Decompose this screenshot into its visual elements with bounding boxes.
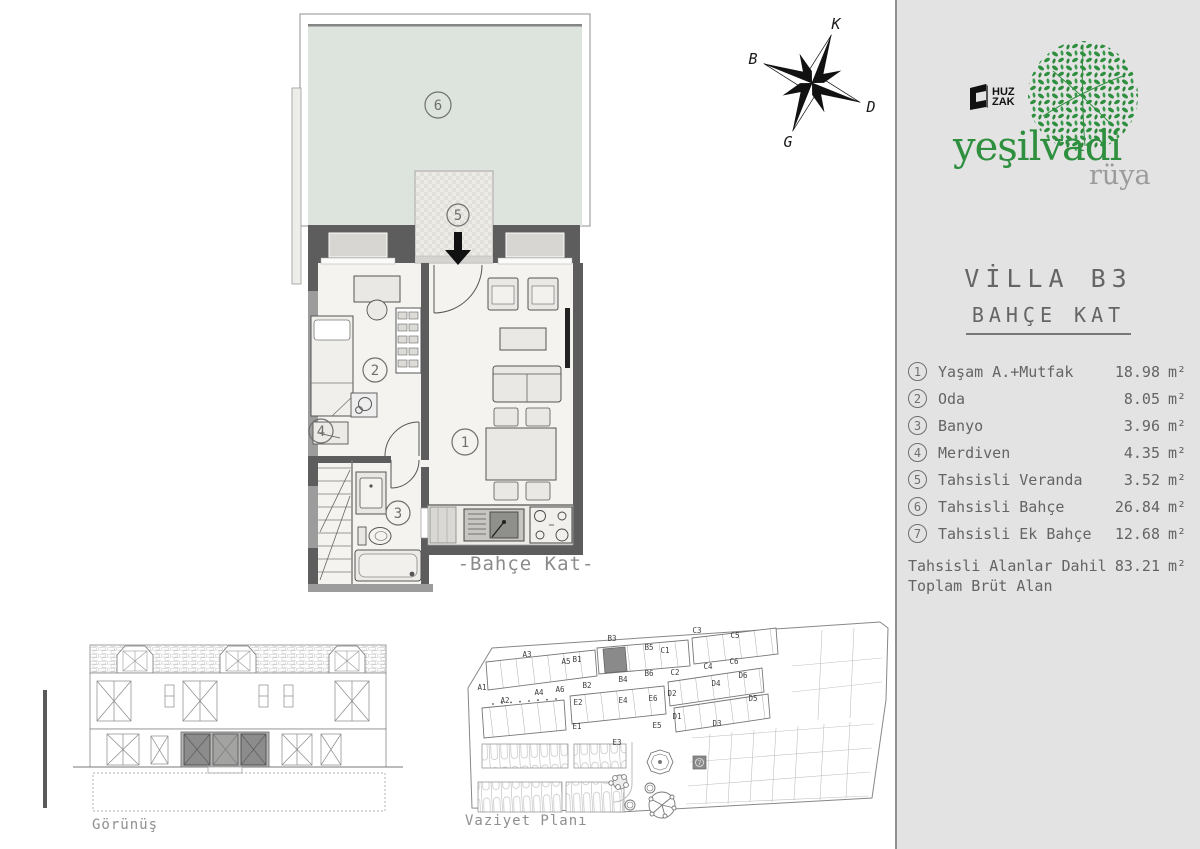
room-row: 2 Oda 8.05 m² [908,385,1186,412]
room-list: 1 Yaşam A.+Mutfak 18.98 m² 2 Oda 8.05 m²… [908,358,1186,547]
total-area: 83.21 [1110,557,1160,575]
room-area: 12.68 [1110,525,1160,543]
block-label: B6 [644,669,654,678]
plan-num-3: 3 [394,506,402,522]
compass-east-label: D [865,98,875,116]
block-label: A6 [555,685,565,694]
villa-title: VİLLA B3 [897,264,1200,293]
room-name: Oda [938,390,1110,408]
huzzak-logo: HUZ ZAK [969,84,1015,110]
total-unit: m² [1160,557,1186,575]
block-label: C4 [703,662,713,671]
floor-plan-label: -Bahçe Kat- [458,553,595,575]
room-area: 18.98 [1110,363,1160,381]
total-label-line1: Tahsisli Alanlar Dahil [908,557,1110,575]
floor-plan-drawing: 6 5 2 4 1 3 -Bahçe Kat- [288,8,598,592]
compass-icon: K D G B [740,5,890,155]
block-label: B5 [644,643,653,652]
room-num-badge: 6 [908,497,927,516]
room-name: Tahsisli Bahçe [938,498,1110,516]
compass-north-label: K [830,15,841,33]
ek-bahce-marker: 7 [693,756,706,769]
elevation-building [73,645,403,811]
room-row: 3 Banyo 3.96 m² [908,412,1186,439]
block-label: C3 [692,626,701,635]
block-label: D3 [712,719,721,728]
room-name: Yaşam A.+Mutfak [938,363,1110,381]
block-label: D2 [667,689,676,698]
highlighted-unit [181,732,269,767]
block-label: B3 [607,634,616,643]
room-num-badge: 2 [908,389,927,408]
huzzak-door-icon [969,84,989,110]
block-label: D5 [748,694,757,703]
block-label: E2 [573,698,582,707]
block-label: A3 [522,650,531,659]
brand-subname: rüya [1089,160,1151,191]
plan-num-4: 4 [317,424,325,440]
room-name: Merdiven [938,444,1110,462]
brochure-page: 6 5 2 4 1 3 -Bahçe Kat- K D G B [0,0,1200,849]
room-num-badge: 1 [908,362,927,381]
ek-bahce-num: 7 [698,760,702,767]
elevation-label: Görünüş [92,817,158,833]
room-row: 5 Tahsisli Veranda 3.52 m² [908,466,1186,493]
room-row: 1 Yaşam A.+Mutfak 18.98 m² [908,358,1186,385]
plan-num-5: 5 [454,208,462,224]
kitchen-counter [428,505,573,545]
room-name: Tahsisli Ek Bahçe [938,525,1110,543]
compass-west-label: B [748,50,757,68]
room-name: Tahsisli Veranda [938,471,1110,489]
huzzak-text-zak: ZAK [992,97,1015,107]
elevation-drawing: Görünüş [35,633,405,838]
block-label: E3 [612,738,621,747]
plan-num-1: 1 [461,435,469,451]
room-area: 3.52 [1110,471,1160,489]
block-label: B1 [572,655,581,664]
room-unit: m² [1160,417,1186,435]
site-plan-label: Vaziyet Planı [465,813,588,829]
room-row: 4 Merdiven 4.35 m² [908,439,1186,466]
highlighted-block-b3 [603,647,627,673]
room-num-badge: 7 [908,524,927,543]
room-num-badge: 5 [908,470,927,489]
block-label: E4 [618,696,628,705]
block-label: C6 [729,657,739,666]
floor-title: BAHÇE KAT [966,303,1131,335]
block-label: E1 [572,722,581,731]
block-label: A1 [477,683,486,692]
block-label: C5 [730,631,739,640]
compass-south-label: G [783,133,792,151]
room-unit: m² [1160,444,1186,462]
room-unit: m² [1160,525,1186,543]
floor-title-wrap: BAHÇE KAT [897,303,1200,335]
room-area: 8.05 [1110,390,1160,408]
room-unit: m² [1160,363,1186,381]
plan-num-6: 6 [434,98,442,114]
room-area: 3.96 [1110,417,1160,435]
block-label: A5 [561,657,570,666]
block-label: A4 [534,688,544,697]
block-label: A2 [500,696,509,705]
room-unit: m² [1160,471,1186,489]
block-label: E6 [648,694,658,703]
total-area-block: Tahsisli Alanlar Dahil 83.21 m² Toplam B… [908,556,1186,596]
block-label: B4 [618,675,628,684]
room-area: 4.35 [1110,444,1160,462]
plan-num-2: 2 [371,363,379,379]
room-row: 6 Tahsisli Bahçe 26.84 m² [908,493,1186,520]
elevation-section-bar [43,690,47,808]
total-label-line2: Toplam Brüt Alan [908,577,1053,595]
block-label: B2 [582,681,591,690]
site-plan-drawing: 7 A1 A2 A3 A4 A5 A6 B1 B2 B3 B4 B5 B6 C1… [462,616,897,831]
room-area: 26.84 [1110,498,1160,516]
block-label: C1 [660,646,669,655]
room-unit: m² [1160,390,1186,408]
room-name: Banyo [938,417,1110,435]
room-row: 7 Tahsisli Ek Bahçe 12.68 m² [908,520,1186,547]
room-unit: m² [1160,498,1186,516]
block-label: D4 [711,679,721,688]
block-label: D1 [672,712,681,721]
room-num-badge: 4 [908,443,927,462]
block-label: C2 [670,668,679,677]
block-label: D6 [738,671,748,680]
room-num-badge: 3 [908,416,927,435]
block-label: E5 [652,721,661,730]
